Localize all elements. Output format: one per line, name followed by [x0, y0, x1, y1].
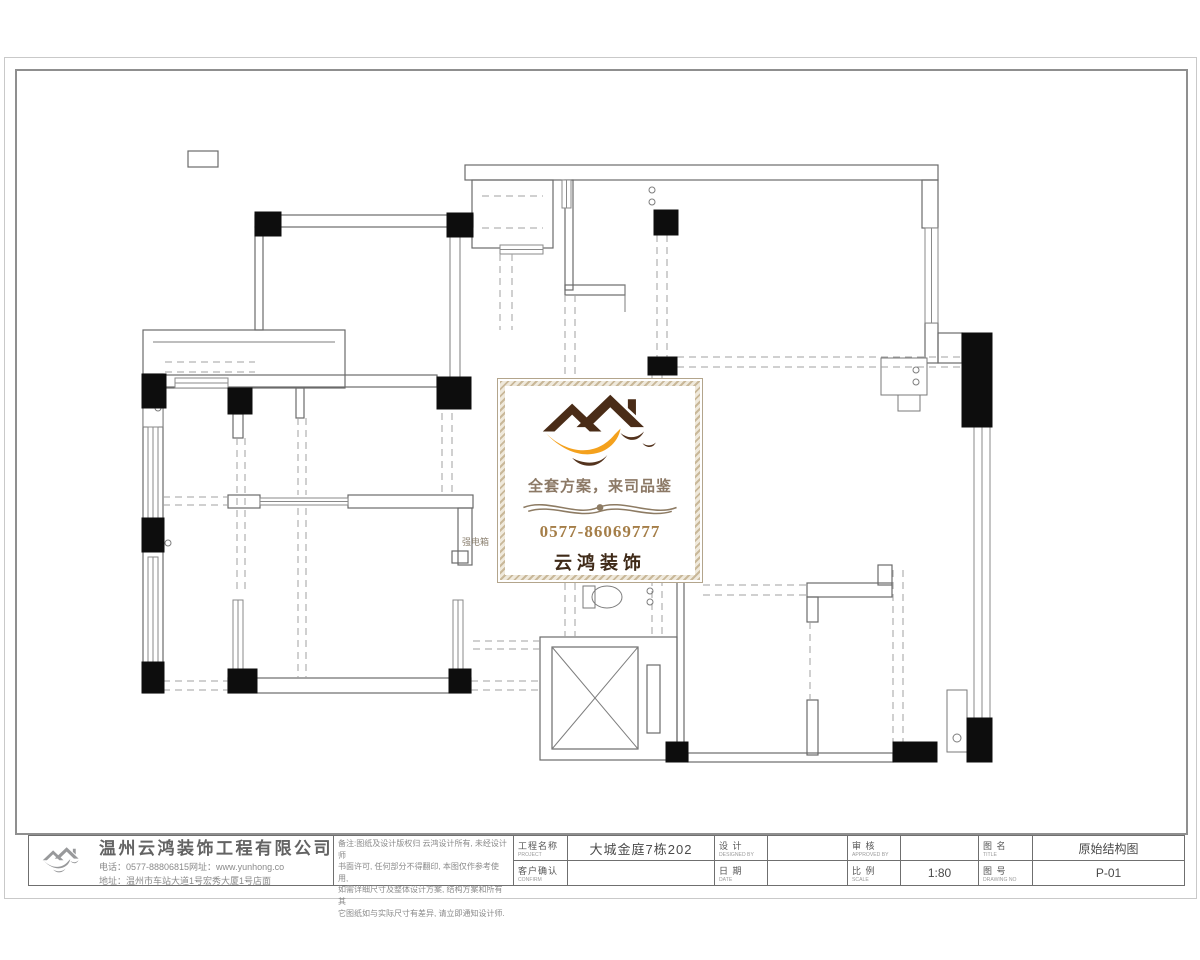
field-project-label: 工程名称 PROJECT — [513, 836, 567, 860]
watermark-slogan: 全套方案，来司品鉴 — [528, 475, 672, 496]
notes-line: 书面许可, 任何部分不得翻印, 本图仅作参考使用, — [338, 861, 509, 884]
brand-watermark: 全套方案，来司品鉴 0577-86069777 云鸿装饰 — [497, 378, 703, 583]
drawing-sheet: 强电箱 全套方案，来司品鉴 0577-86069777 云鸿装饰 — [0, 0, 1200, 960]
field-project-value: 大城金庭7栋202 — [567, 836, 714, 860]
watermark-brand-name: 云鸿装饰 — [554, 549, 646, 575]
company-phone-website: 电话：0577-88806815网址：www.yunhong.co — [99, 860, 333, 873]
title-block-fields: 工程名称 PROJECT 大城金庭7栋202 设 计 DESIGNED BY 审… — [513, 836, 1184, 885]
field-drawing-no-label: 图 号 DRAWING NO — [978, 860, 1032, 885]
field-drawing-no-value: P-01 — [1032, 860, 1184, 885]
watermark-phone: 0577-86069777 — [540, 522, 661, 542]
field-designer-label: 设 计 DESIGNED BY — [714, 836, 767, 860]
title-block: 温州云鸿装饰工程有限公司 电话：0577-88806815网址：www.yunh… — [28, 835, 1185, 886]
field-date-value — [767, 860, 847, 885]
field-title-value: 原始结构图 — [1032, 836, 1184, 860]
company-logo-icon — [37, 839, 89, 883]
company-name: 温州云鸿装饰工程有限公司 — [99, 834, 333, 859]
company-section: 温州云鸿装饰工程有限公司 电话：0577-88806815网址：www.yunh… — [29, 836, 333, 885]
field-scale-label: 比 例 SCALE — [847, 860, 900, 885]
field-confirm-label: 客户确认 CONFIRM — [513, 860, 567, 885]
field-designer-value — [767, 836, 847, 860]
notes-line: 它图纸如与实际尺寸有差异, 请立即通知设计师. — [338, 908, 509, 920]
field-confirm-value — [567, 860, 714, 885]
copyright-notes: 备注:图纸及设计版权归 云鸿设计所有, 未经设计师 书面许可, 任何部分不得翻印… — [333, 836, 513, 885]
house-birds-logo-icon — [525, 386, 675, 474]
watermark-ornate-frame: 全套方案，来司品鉴 0577-86069777 云鸿装饰 — [500, 381, 700, 580]
field-date-label: 日 期 DATE — [714, 860, 767, 885]
svg-text:强电箱: 强电箱 — [462, 536, 489, 547]
notes-line: 备注:图纸及设计版权归 云鸿设计所有, 未经设计师 — [338, 838, 509, 861]
flourish-divider-icon — [516, 496, 684, 519]
company-address: 地址：温州市车站大道1号宏秀大厦1号店面 — [99, 874, 333, 887]
field-approver-value — [900, 836, 978, 860]
field-scale-value: 1:80 — [900, 860, 978, 885]
field-title-label: 图 名 TITLE — [978, 836, 1032, 860]
field-approver-label: 审 核 APPROVED BY — [847, 836, 900, 860]
notes-line: 如需详细尺寸及整体设计方案, 结构方案和所有其 — [338, 884, 509, 907]
